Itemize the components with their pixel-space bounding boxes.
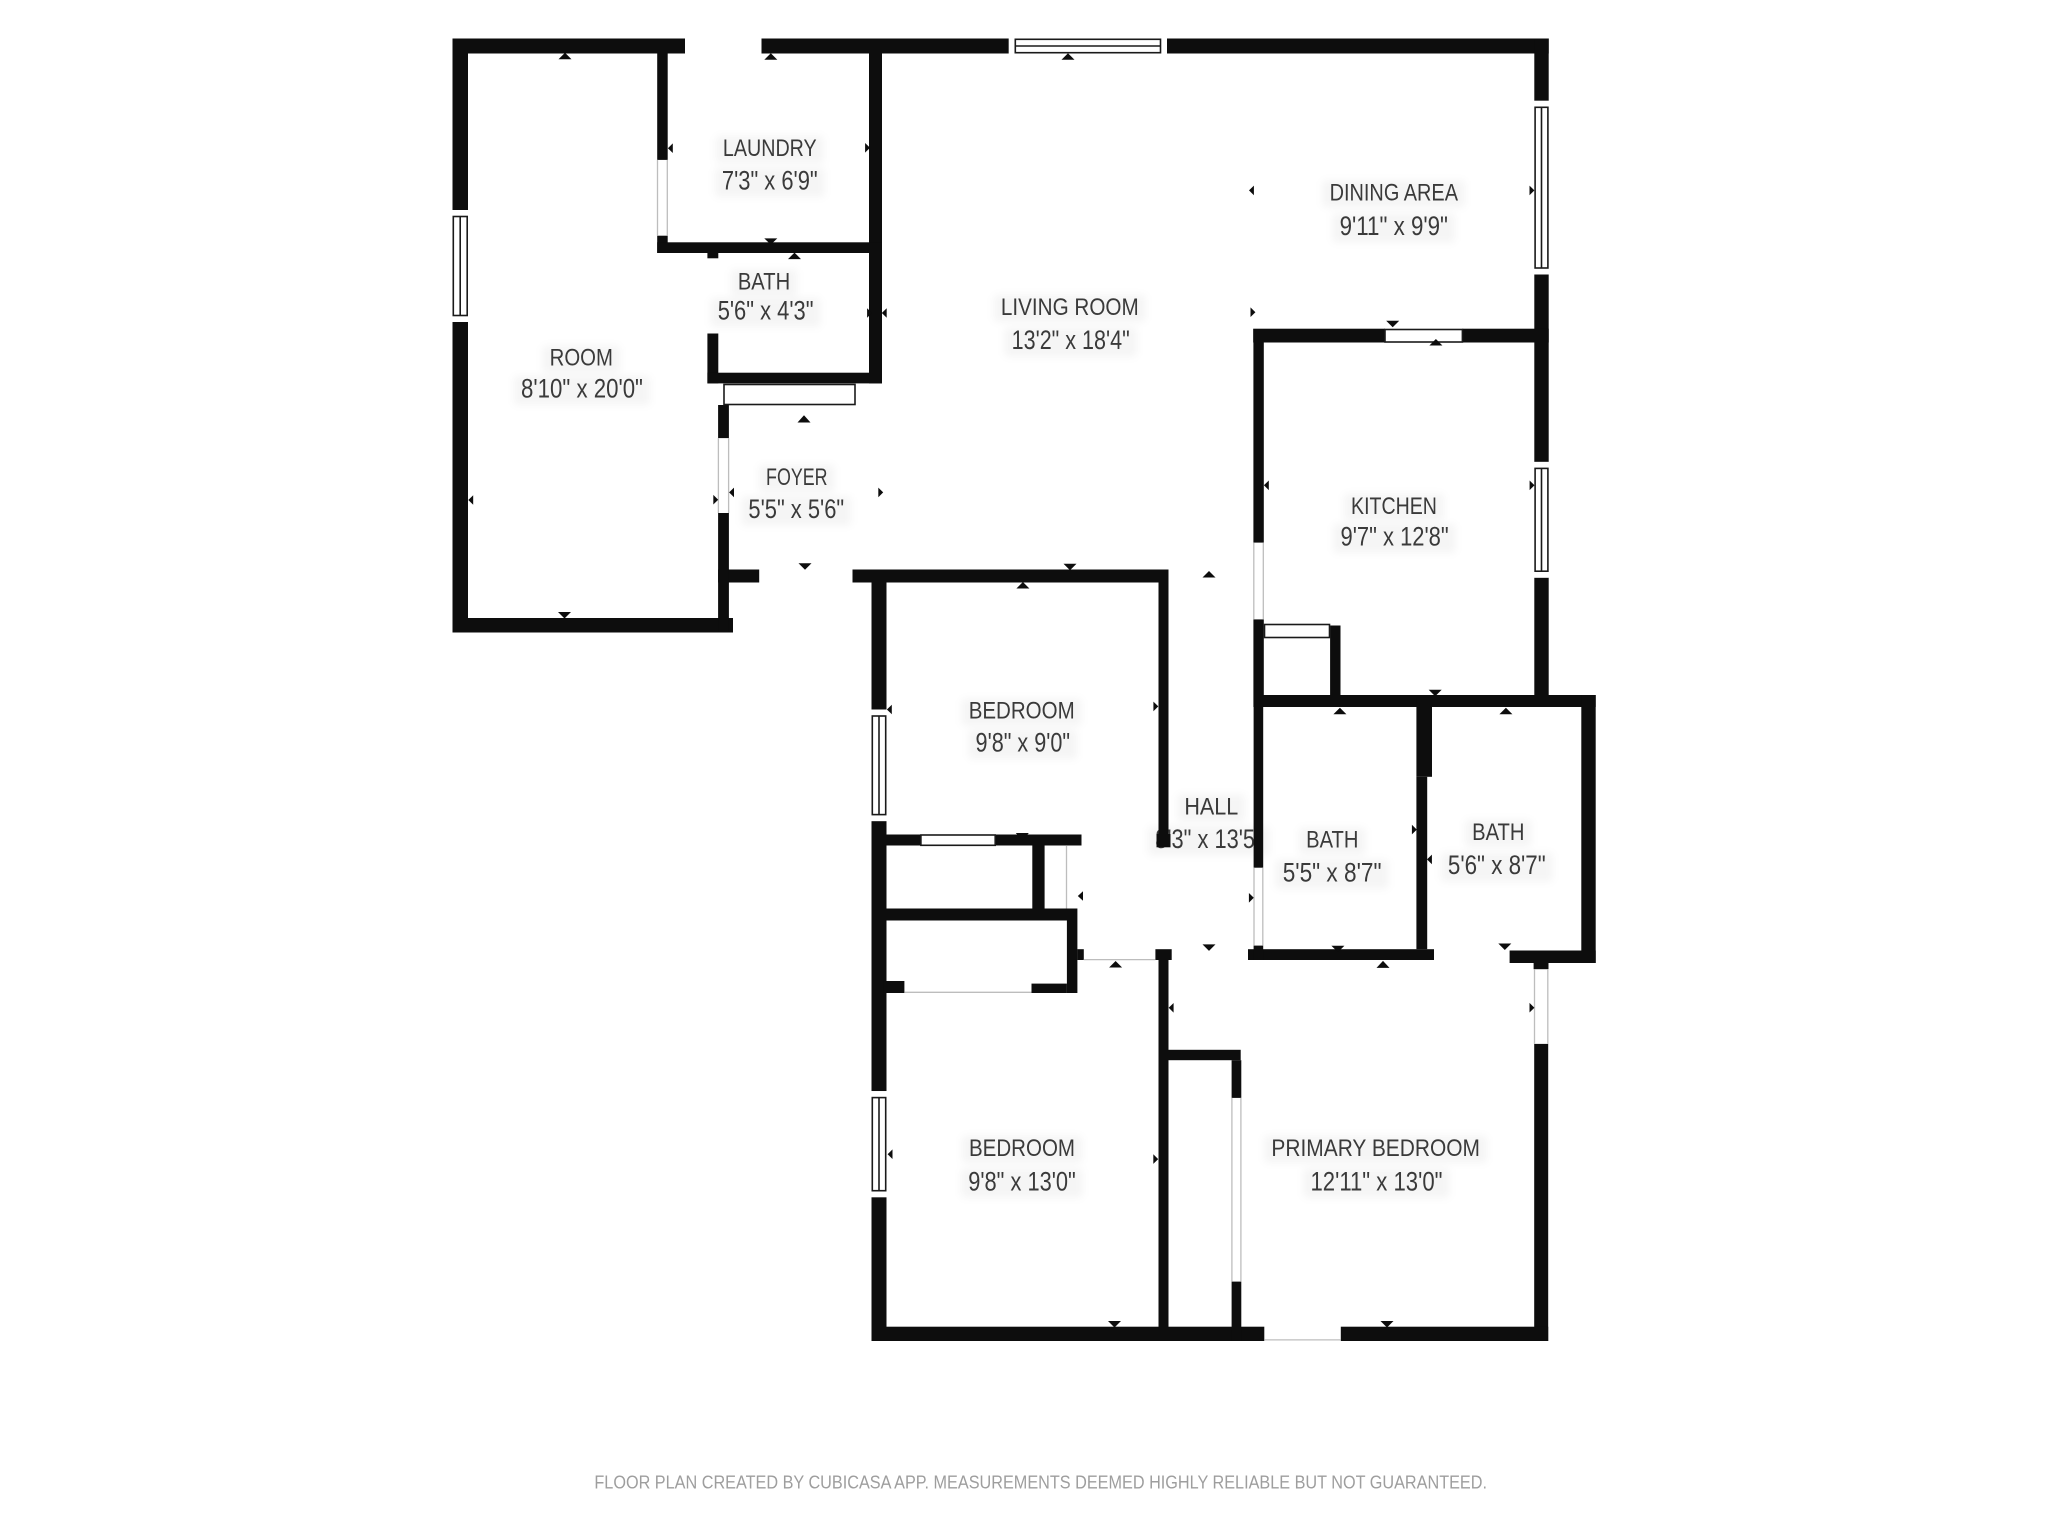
svg-text:5'6" x 4'3": 5'6" x 4'3" [718, 296, 814, 326]
svg-text:9'7" x 12'8": 9'7" x 12'8" [1341, 522, 1449, 552]
svg-text:12'11" x 13'0": 12'11" x 13'0" [1311, 1166, 1443, 1196]
svg-text:8'10" x 20'0": 8'10" x 20'0" [521, 374, 643, 404]
svg-text:7'3" x 6'9": 7'3" x 6'9" [722, 166, 818, 196]
svg-text:9'8" x 13'0": 9'8" x 13'0" [968, 1166, 1076, 1196]
svg-text:9'8" x 9'0": 9'8" x 9'0" [976, 728, 1071, 758]
svg-text:PRIMARY BEDROOM: PRIMARY BEDROOM [1271, 1135, 1480, 1162]
svg-text:BATH: BATH [738, 268, 790, 295]
svg-text:FLOOR PLAN CREATED BY CUBICASA: FLOOR PLAN CREATED BY CUBICASA APP. MEAS… [594, 1471, 1487, 1492]
svg-text:KITCHEN: KITCHEN [1351, 493, 1437, 520]
svg-text:ROOM: ROOM [550, 345, 613, 372]
svg-text:5'6" x 8'7": 5'6" x 8'7" [1448, 850, 1546, 880]
svg-text:LIVING ROOM: LIVING ROOM [1001, 294, 1139, 321]
svg-text:DINING AREA: DINING AREA [1330, 179, 1459, 206]
svg-text:5'5" x 8'7": 5'5" x 8'7" [1283, 857, 1382, 887]
svg-text:9'11" x 9'9": 9'11" x 9'9" [1340, 211, 1448, 241]
svg-text:BATH: BATH [1472, 819, 1524, 846]
svg-text:HALL: HALL [1184, 794, 1238, 821]
svg-text:BEDROOM: BEDROOM [969, 1135, 1075, 1162]
svg-text:BATH: BATH [1306, 827, 1358, 854]
svg-text:LAUNDRY: LAUNDRY [723, 135, 817, 162]
svg-text:FOYER: FOYER [766, 464, 828, 491]
svg-text:13'2" x 18'4": 13'2" x 18'4" [1012, 325, 1130, 355]
svg-text:BEDROOM: BEDROOM [969, 698, 1075, 725]
svg-text:5'5" x 5'6": 5'5" x 5'6" [748, 494, 844, 524]
svg-text:8'3" x 13'5": 8'3" x 13'5" [1155, 824, 1263, 854]
